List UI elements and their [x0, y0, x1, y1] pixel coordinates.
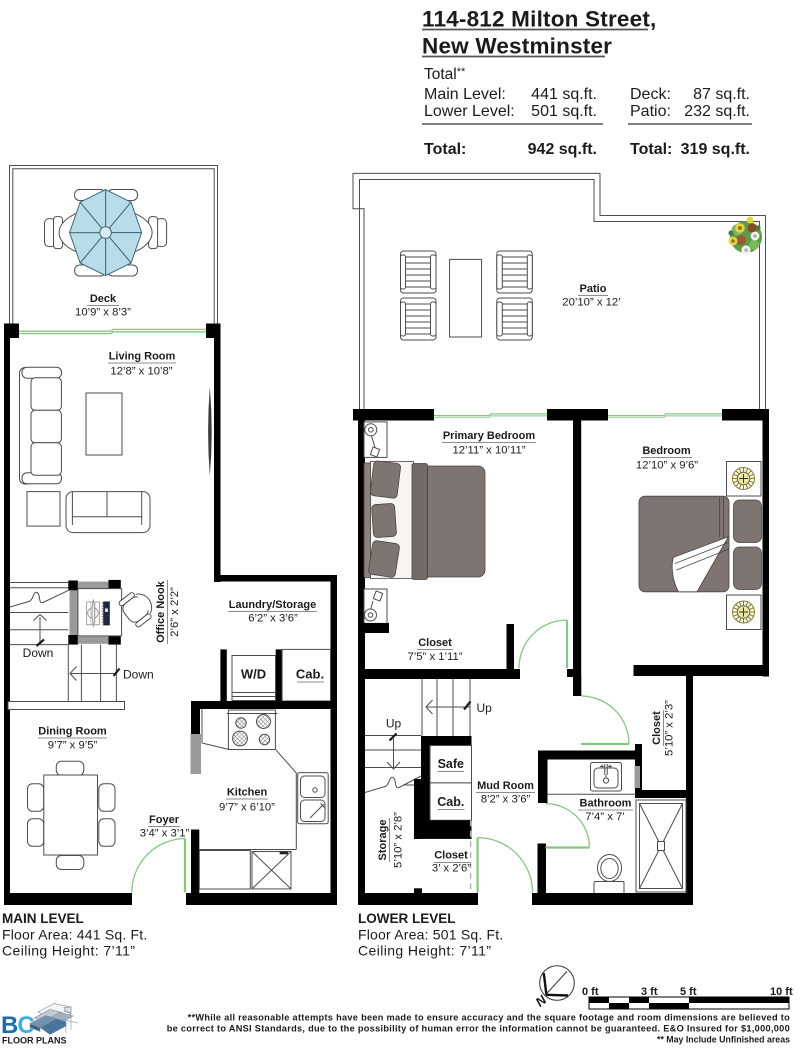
- svg-text:Kitchen: Kitchen: [227, 787, 268, 799]
- svg-text:319 sq.ft.: 319 sq.ft.: [681, 141, 750, 158]
- svg-text:114-812 Milton Street,: 114-812 Milton Street,: [422, 7, 657, 32]
- svg-text:Up: Up: [477, 701, 493, 715]
- svg-text:Deck: Deck: [90, 293, 117, 305]
- svg-text:** May Include Unfinished area: ** May Include Unfinished areas: [657, 1035, 790, 1045]
- svg-text:9’7” x 9’5”: 9’7” x 9’5”: [48, 740, 98, 752]
- svg-text:10’9” x 8’3”: 10’9” x 8’3”: [75, 307, 131, 319]
- svg-text:Down: Down: [23, 646, 54, 660]
- svg-text:Deck:: Deck:: [630, 86, 671, 103]
- svg-text:7’4” x 7’: 7’4” x 7’: [585, 811, 625, 823]
- svg-text:10 ft: 10 ft: [770, 986, 793, 998]
- svg-text:Cab.: Cab.: [437, 795, 464, 809]
- svg-text:Lower Level:: Lower Level:: [424, 103, 515, 120]
- svg-text:Laundry/Storage: Laundry/Storage: [229, 599, 316, 611]
- svg-text:Total:: Total:: [424, 141, 466, 158]
- svg-text:3’ x 2’6”: 3’ x 2’6”: [432, 863, 471, 875]
- svg-text:Main Level:: Main Level:: [424, 86, 506, 103]
- svg-text:Office Nook: Office Nook: [155, 580, 167, 643]
- svg-text:Living Room: Living Room: [109, 351, 176, 363]
- svg-text:Bathroom: Bathroom: [580, 798, 632, 810]
- svg-text:6’2” x 3’6”: 6’2” x 3’6”: [248, 613, 298, 625]
- svg-text:3 ft: 3 ft: [641, 986, 658, 998]
- svg-text:12’11” x 10’11”: 12’11” x 10’11”: [452, 445, 525, 457]
- svg-text:9’7” x 6’10”: 9’7” x 6’10”: [219, 802, 275, 814]
- svg-text:3’4” x 3’1”: 3’4” x 3’1”: [140, 828, 190, 840]
- svg-text:Bedroom: Bedroom: [642, 445, 691, 457]
- svg-text:Closet: Closet: [418, 637, 452, 649]
- svg-text:Ceiling Height: 7’11”: Ceiling Height: 7’11”: [358, 943, 491, 959]
- svg-text:232 sq.ft.: 232 sq.ft.: [684, 103, 750, 120]
- svg-text:7’5” x 1’11”: 7’5” x 1’11”: [407, 651, 462, 663]
- svg-text:**While all reasonable attempt: **While all reasonable attempts have bee…: [188, 1013, 790, 1023]
- svg-text:W/D: W/D: [241, 667, 266, 682]
- svg-text:12’10” x 9’6”: 12’10” x 9’6”: [636, 460, 698, 472]
- svg-text:Storage: Storage: [377, 820, 389, 861]
- svg-text:Foyer: Foyer: [149, 814, 180, 826]
- svg-text:12’8” x 10’8”: 12’8” x 10’8”: [110, 366, 172, 378]
- svg-text:Total**: Total**: [424, 66, 466, 83]
- svg-text:Total:: Total:: [630, 141, 672, 158]
- svg-text:Closet: Closet: [434, 850, 468, 862]
- svg-text:5’10” x 2’3”: 5’10” x 2’3”: [664, 700, 676, 756]
- svg-text:Down: Down: [123, 668, 154, 682]
- svg-text:LOWER LEVEL: LOWER LEVEL: [358, 911, 456, 926]
- svg-text:87 sq.ft.: 87 sq.ft.: [693, 86, 750, 103]
- svg-text:be correct to ANSI Standards,: be correct to ANSI Standards, due to the…: [167, 1024, 790, 1034]
- svg-text:Up: Up: [386, 717, 402, 731]
- svg-text:2’6” x 2’2”: 2’6” x 2’2”: [169, 587, 181, 637]
- svg-text:Safe: Safe: [438, 757, 464, 771]
- svg-text:New Westminster: New Westminster: [422, 34, 612, 59]
- svg-text:8’2” x 3’6”: 8’2” x 3’6”: [481, 794, 531, 806]
- svg-text:Cab.: Cab.: [296, 667, 324, 682]
- svg-text:0 ft: 0 ft: [582, 986, 599, 998]
- svg-text:FLOOR PLANS: FLOOR PLANS: [2, 1036, 67, 1046]
- svg-text:5 ft: 5 ft: [680, 986, 697, 998]
- svg-text:Floor Area: 441 Sq. Ft.: Floor Area: 441 Sq. Ft.: [2, 927, 147, 943]
- svg-text:20’10” x 12’: 20’10” x 12’: [562, 297, 620, 309]
- svg-text:Patio:: Patio:: [630, 103, 671, 120]
- svg-text:Primary Bedroom: Primary Bedroom: [443, 430, 536, 442]
- svg-text:Patio: Patio: [580, 283, 607, 295]
- svg-text:MAIN LEVEL: MAIN LEVEL: [2, 911, 84, 926]
- svg-text:Dining Room: Dining Room: [38, 726, 107, 738]
- svg-text:441 sq.ft.: 441 sq.ft.: [531, 86, 597, 103]
- svg-text:942 sq.ft.: 942 sq.ft.: [528, 141, 597, 158]
- svg-text:Closet: Closet: [651, 711, 663, 745]
- svg-text:Mud Room: Mud Room: [477, 780, 534, 792]
- svg-text:Floor Area: 501 Sq. Ft.: Floor Area: 501 Sq. Ft.: [358, 927, 503, 943]
- svg-text:5’10” x 2’8”: 5’10” x 2’8”: [393, 812, 405, 868]
- svg-text:Ceiling Height: 7’11”: Ceiling Height: 7’11”: [2, 943, 135, 959]
- svg-text:501 sq.ft.: 501 sq.ft.: [531, 103, 597, 120]
